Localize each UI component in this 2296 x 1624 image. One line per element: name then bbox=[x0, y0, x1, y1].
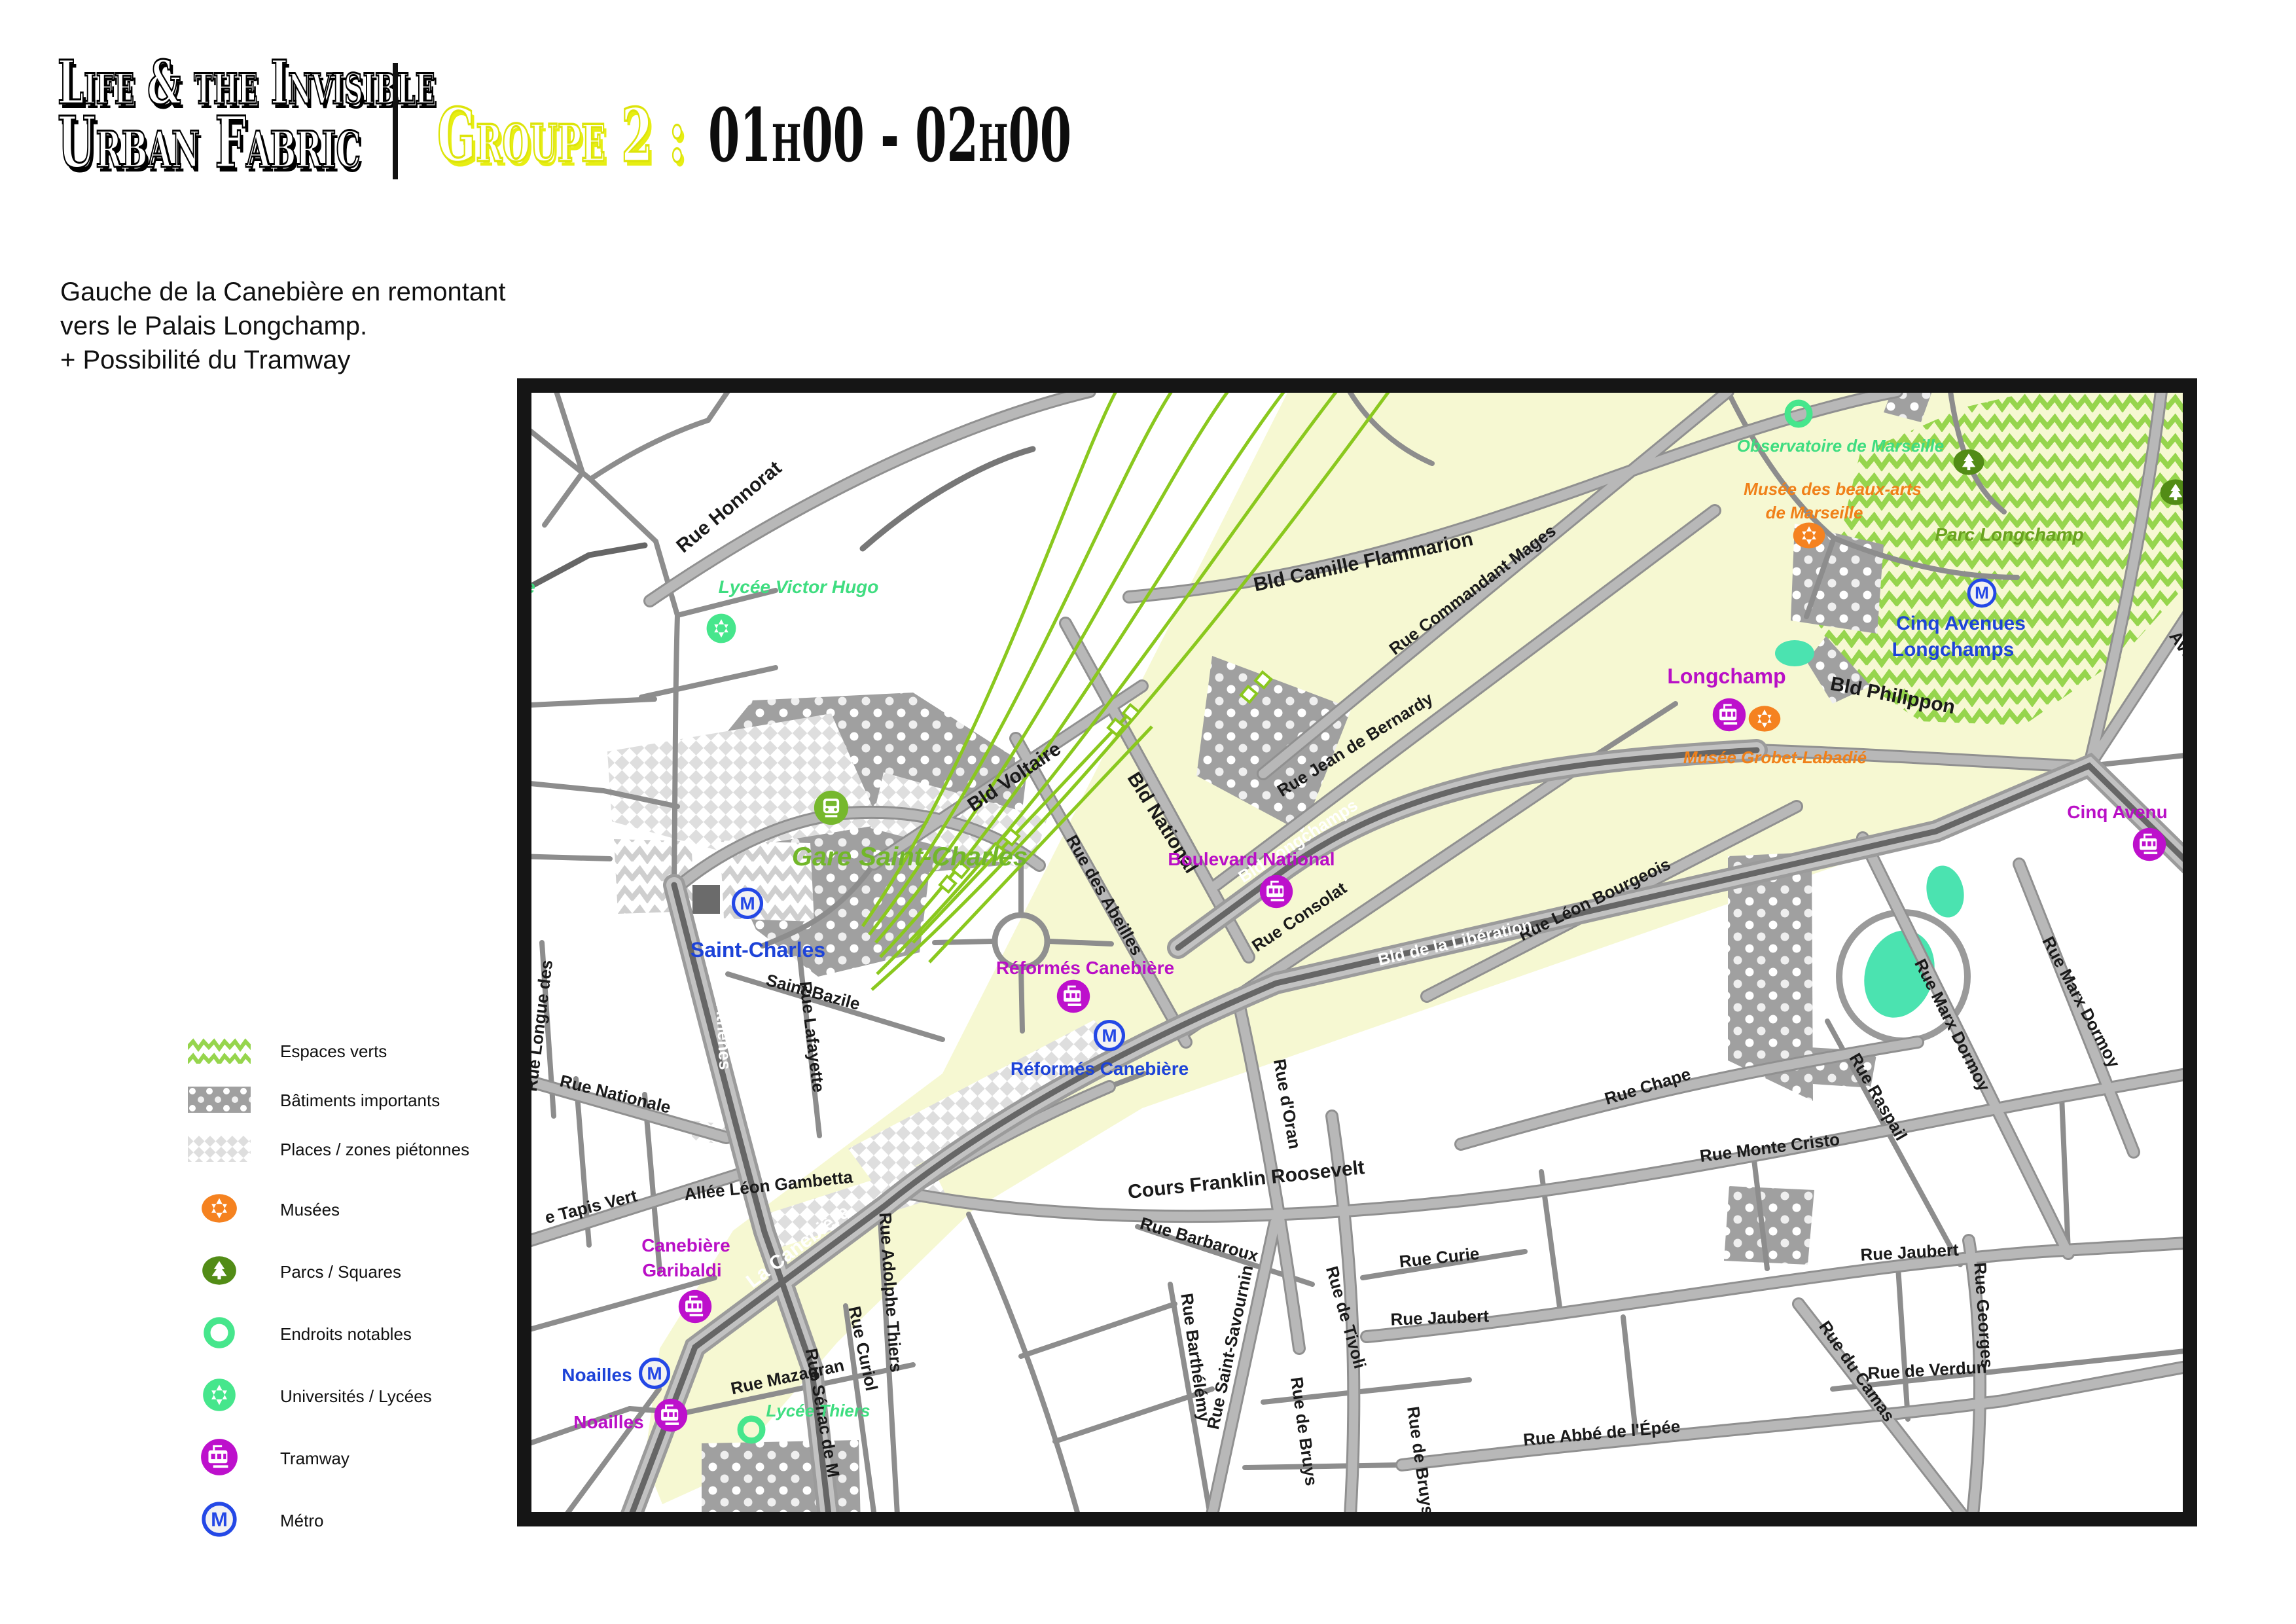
page-title: Life & the Invisible Urban Fabric bbox=[58, 55, 435, 175]
street-rue-d-oran: Rue d'Oran bbox=[1270, 1057, 1305, 1150]
street-rue-marx-dormoy-2: Rue Marx Dormoy bbox=[2038, 933, 2124, 1072]
tram-icon-boulevard-national bbox=[1260, 875, 1293, 908]
park-icon-longchamp bbox=[1954, 449, 1984, 475]
poi-cinq-avenues-2: Longchamps bbox=[1892, 639, 2015, 660]
poi-parc-longchamp: Parc Longchamp bbox=[1935, 524, 2083, 545]
school-icon-victor-hugo bbox=[707, 614, 736, 643]
legend-label: Bâtiments importants bbox=[280, 1091, 440, 1111]
poi-tram-garibaldi-1: Canebière bbox=[641, 1235, 730, 1255]
legend-label: Métro bbox=[280, 1511, 323, 1531]
poi-musee-beaux-arts-1: Musée des beaux-arts bbox=[1744, 479, 1922, 499]
tram-icon-garibaldi bbox=[679, 1290, 711, 1323]
museum-icon bbox=[199, 1188, 240, 1229]
street-rue-curie: Rue Curie bbox=[1398, 1244, 1480, 1272]
legend-label: Endroits notables bbox=[280, 1324, 412, 1344]
description-line: + Possibilité du Tramway bbox=[60, 343, 505, 377]
metro-icon bbox=[199, 1499, 240, 1540]
title-line2: Urban Fabric bbox=[58, 111, 435, 175]
street-rue-de-bruys: Rue de Bruys bbox=[1287, 1376, 1321, 1487]
legend-label: Musées bbox=[280, 1200, 340, 1220]
street-cours-franklin-roosevelt: Cours Franklin Roosevelt bbox=[1127, 1157, 1366, 1203]
metro-icon-noailles bbox=[641, 1360, 669, 1388]
poi-observatoire: Observatoire de Marseille bbox=[1737, 436, 1944, 456]
description-line: Gauche de la Canebière en remontant bbox=[60, 275, 505, 309]
museum-icon-beaux-arts bbox=[1793, 522, 1825, 548]
city-map: M bbox=[517, 378, 2197, 1526]
espaces-verts-swatch bbox=[188, 1038, 251, 1064]
tram-icon-noailles bbox=[655, 1399, 687, 1432]
poi-tram-noailles: Noailles bbox=[573, 1412, 643, 1432]
poi-tram-boulevard-national: Boulevard National bbox=[1168, 849, 1335, 869]
description-line: vers le Palais Longchamp. bbox=[60, 309, 505, 343]
poi-cinq-avenues-1: Cinq Avenues bbox=[1896, 613, 2026, 634]
metro-icon-cinq-avenues bbox=[1969, 580, 1995, 606]
poi-gare-saint-charles: Gare Saint-Charles bbox=[792, 842, 1028, 871]
time-range: 01h00 - 02h00 bbox=[708, 93, 1071, 179]
poi-musee-beaux-arts-2: de Marseille bbox=[1766, 503, 1863, 522]
terrain-hatch bbox=[614, 839, 814, 922]
train-station-icon bbox=[814, 791, 848, 825]
legend-label: Parcs / Squares bbox=[280, 1262, 401, 1282]
poster-page: Life & the Invisible Urban Fabric Groupe… bbox=[0, 0, 2296, 1624]
tram-icon-cinq-avenues bbox=[2133, 828, 2166, 861]
poi-tram-longchamp: Longchamp bbox=[1667, 664, 1785, 688]
poi-tram-reformes: Réformés Canebière bbox=[996, 958, 1174, 978]
poi-metro-saint-charles: Saint-Charles bbox=[691, 938, 825, 962]
street-rue-jaubert: Rue Jaubert bbox=[1390, 1306, 1490, 1329]
poi-tram-garibaldi-2: Garibaldi bbox=[642, 1260, 721, 1280]
batiments-swatch bbox=[188, 1087, 251, 1113]
tram-icon bbox=[199, 1437, 240, 1477]
group-label-front: Groupe 2 : bbox=[437, 93, 685, 179]
legend-label: Espaces verts bbox=[280, 1041, 387, 1062]
poi-tram-cinq-avenues: Cinq Avenu bbox=[2067, 802, 2167, 822]
museum-icon-grobet bbox=[1749, 706, 1781, 731]
legend-label: Places / zones piétonnes bbox=[280, 1140, 469, 1160]
legend-label: Tramway bbox=[280, 1449, 350, 1469]
poi-metro-reformes: Réformés Canebière bbox=[1011, 1058, 1189, 1079]
places-swatch bbox=[188, 1136, 251, 1162]
park-icon bbox=[199, 1250, 240, 1291]
street-rue-marx-dormoy: Rue Marx Dormoy bbox=[1910, 956, 1994, 1094]
poi-metro-noailles: Noailles bbox=[562, 1365, 632, 1385]
tram-icon-longchamp bbox=[1713, 698, 1746, 731]
university-icon bbox=[199, 1375, 240, 1415]
street-rue-monte-cristo: Rue Monte Cristo bbox=[1698, 1129, 1840, 1166]
street-rue-de-verdun: Rue de Verdun bbox=[1867, 1357, 1987, 1382]
metro-icon-reformes bbox=[1096, 1022, 1124, 1050]
description: Gauche de la Canebière en remontant vers… bbox=[60, 275, 505, 377]
street-rue-chape: Rue Chape bbox=[1602, 1064, 1693, 1108]
poi-lycee-thiers: Lycée Thiers bbox=[766, 1401, 870, 1420]
tram-icon-reformes bbox=[1057, 980, 1090, 1013]
poi-lycee-victor-hugo: Lycée Victor Hugo bbox=[719, 577, 879, 597]
poi-musee-grobet: Musée Grobet-Labadié bbox=[1683, 748, 1867, 767]
legend-label: Universités / Lycées bbox=[280, 1386, 432, 1407]
notable-place-icon bbox=[199, 1312, 240, 1353]
metro-icon-saint-charles bbox=[734, 890, 762, 918]
group-label: Groupe 2 :Groupe 2 : bbox=[437, 93, 685, 179]
title-divider bbox=[393, 63, 398, 179]
